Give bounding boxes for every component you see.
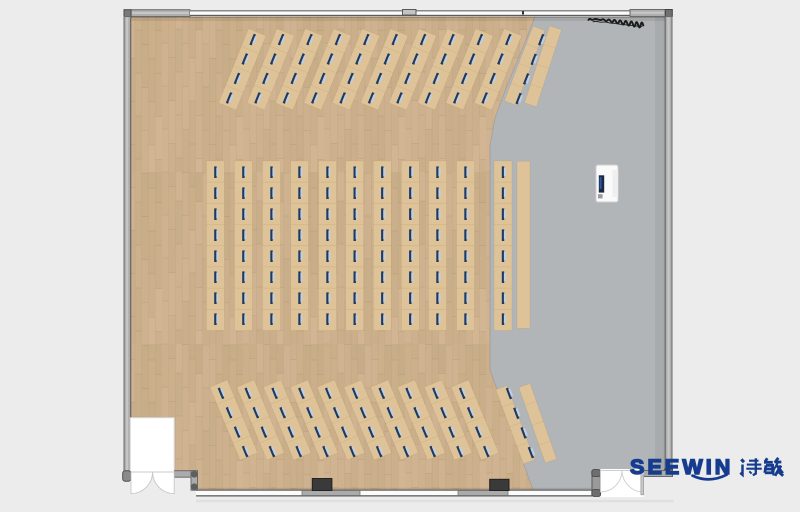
svg-text:SEEWIN: SEEWIN <box>630 455 733 479</box>
